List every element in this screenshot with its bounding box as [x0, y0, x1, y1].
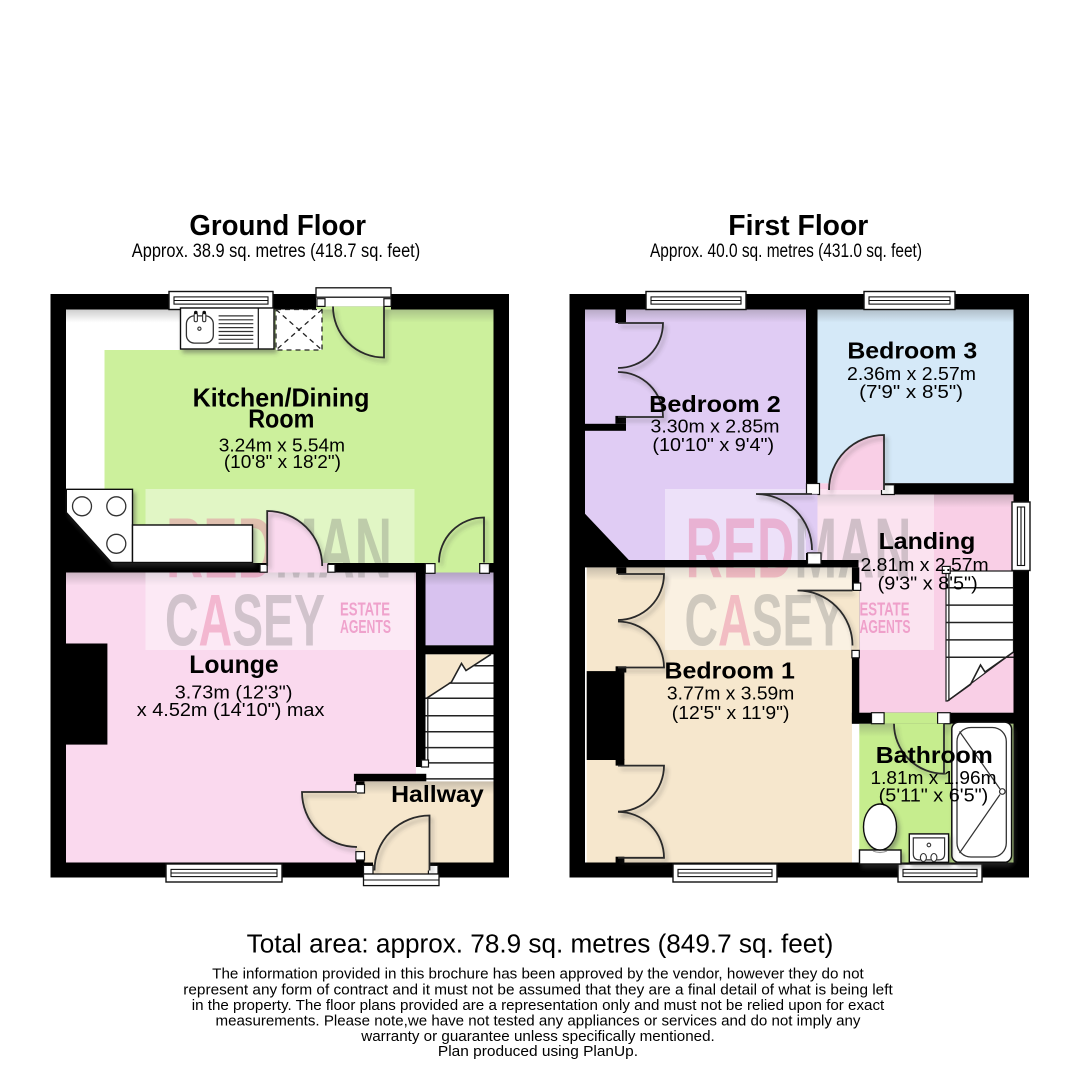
svg-text:in the property. The floor pla: in the property. The floor plans provide… [192, 997, 885, 1014]
svg-text:(10'8" x 18'2"): (10'8" x 18'2") [224, 452, 341, 472]
svg-text:3.77m x 3.59m: 3.77m x 3.59m [667, 684, 794, 704]
svg-text:Lounge: Lounge [189, 651, 278, 679]
svg-text:Landing: Landing [879, 528, 976, 554]
svg-text:Plan produced using PlanUp.: Plan produced using PlanUp. [438, 1043, 638, 1060]
svg-text:Bathroom: Bathroom [876, 742, 993, 768]
svg-text:(7'9" x 8'5"): (7'9" x 8'5") [859, 382, 963, 402]
svg-text:represent any form of contract: represent any form of contract and it mu… [183, 981, 893, 998]
svg-text:AGENTS: AGENTS [340, 616, 391, 637]
svg-text:Bedroom 2: Bedroom 2 [649, 391, 781, 417]
svg-text:Approx. 40.0 sq. metres (431.0: Approx. 40.0 sq. metres (431.0 sq. feet) [650, 241, 922, 262]
svg-text:Approx. 38.9 sq. metres (418.7: Approx. 38.9 sq. metres (418.7 sq. feet) [132, 241, 420, 262]
svg-text:2.81m x 2.57m: 2.81m x 2.57m [861, 555, 989, 575]
svg-text:3.30m x 2.85m: 3.30m x 2.85m [651, 417, 780, 437]
svg-text:AGENTS: AGENTS [860, 616, 911, 637]
svg-text:Bedroom 3: Bedroom 3 [847, 338, 977, 364]
svg-text:Total area: approx. 78.9 sq. m: Total area: approx. 78.9 sq. metres (849… [247, 931, 834, 959]
svg-text:(10'10" x 9'4"): (10'10" x 9'4") [652, 435, 774, 455]
svg-text:First Floor: First Floor [728, 210, 868, 242]
svg-text:The information provided in th: The information provided in this brochur… [212, 965, 864, 982]
svg-text:(12'5" x 11'9"): (12'5" x 11'9") [672, 703, 790, 723]
svg-text:2.36m x 2.57m: 2.36m x 2.57m [847, 364, 976, 384]
svg-text:Bedroom 1: Bedroom 1 [665, 657, 796, 683]
svg-text:(9'3" x 8'5"): (9'3" x 8'5") [878, 573, 978, 593]
svg-text:Ground Floor: Ground Floor [189, 210, 366, 242]
svg-text:Room: Room [248, 404, 314, 434]
svg-text:Hallway: Hallway [391, 781, 484, 807]
svg-text:CASEY: CASEY [165, 581, 325, 662]
svg-text:measurements. Please note,we h: measurements. Please note,we have not te… [216, 1012, 861, 1029]
svg-text:(5'11" x 6'5"): (5'11" x 6'5") [879, 786, 989, 806]
svg-text:x 4.52m (14'10") max: x 4.52m (14'10") max [137, 700, 325, 720]
